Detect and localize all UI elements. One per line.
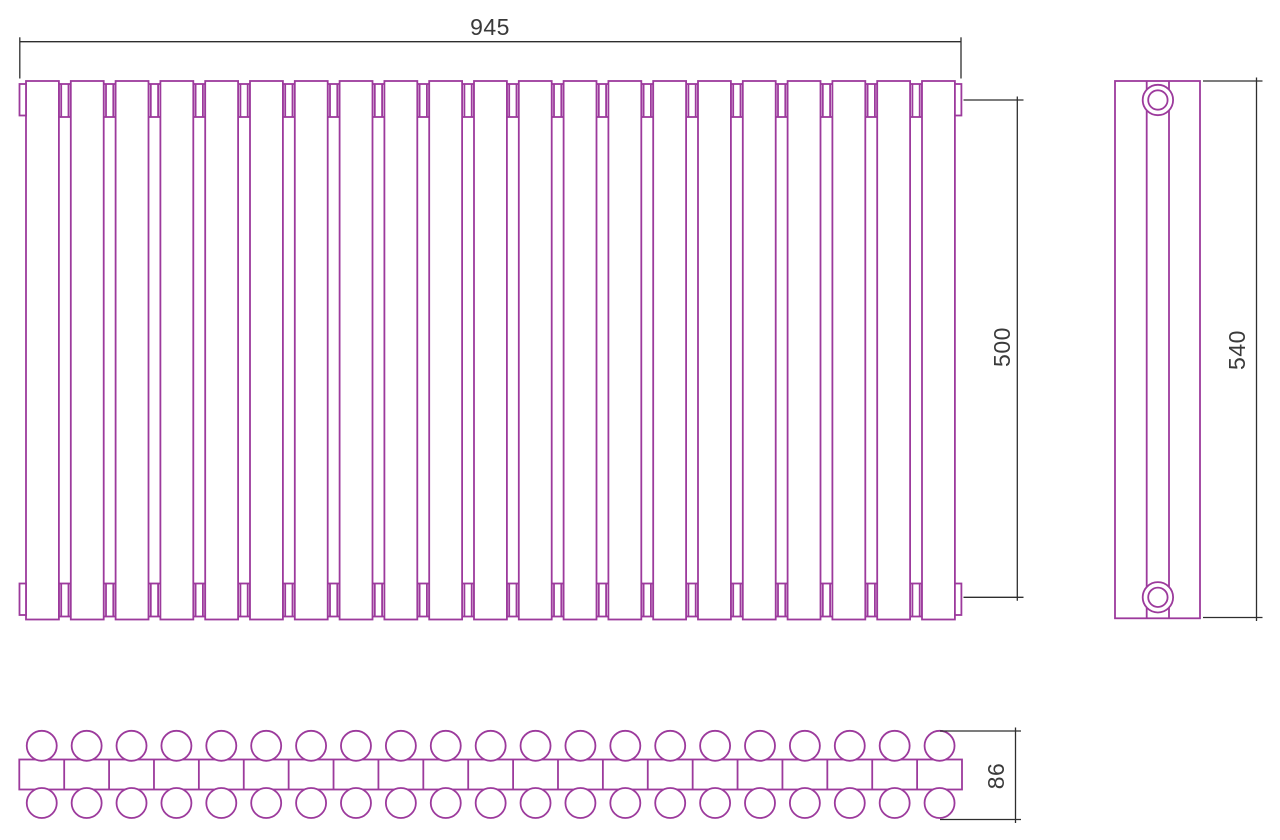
tube-section-circle [27,731,57,761]
front-view [20,81,962,620]
tube-section-circle [386,731,416,761]
tube-section-circle [296,731,326,761]
tube-section-circle [341,788,371,818]
tube-section-circle [72,788,102,818]
connection-stub [955,584,962,616]
tube-section-circle [925,731,955,761]
tube-section-circle [610,731,640,761]
tube-section-circle [206,788,236,818]
tube-section-circle [655,788,685,818]
radiator-column [608,81,641,620]
radiator-column [340,81,373,620]
tube-section-circle [655,731,685,761]
tube-section-circle [476,731,506,761]
dim-overall-width-label: 945 [470,14,510,40]
radiator-column [922,81,955,620]
bottom-view [19,731,962,818]
radiator-column [71,81,104,620]
tube-section-circle [117,788,147,818]
radiator-column [160,81,193,620]
connection-stub [20,84,27,116]
dim-depth-label: 86 [983,763,1009,790]
tube-section-circle [206,731,236,761]
connection-stub [20,584,27,616]
tube-section-circle [386,788,416,818]
tube-section-circle [521,731,551,761]
tube-section-circle [521,788,551,818]
tube-section-circle [27,788,57,818]
radiator-column [116,81,149,620]
tube-section-circle [251,731,281,761]
radiator-column [564,81,597,620]
radiator-column [205,81,238,620]
tube-section-circle [880,788,910,818]
tube-section-circle [745,788,775,818]
tube-section-circle [251,788,281,818]
tube-section-circle [341,731,371,761]
tube-section-circle [700,788,730,818]
tube-section-circle [745,731,775,761]
tube-section-circle [161,731,191,761]
drawing-canvas: 945 500 540 86 [0,0,1280,840]
radiator-column [295,81,328,620]
tube-section-circle [925,788,955,818]
tube-section-circle [835,731,865,761]
tube-section-circle [790,788,820,818]
radiator-column [743,81,776,620]
tube-section-circle [296,788,326,818]
tube-section-circle [117,731,147,761]
radiator-column [519,81,552,620]
tube-section-circle [565,788,595,818]
radiator-column [250,81,283,620]
tube-section-circle [72,731,102,761]
tube-section-circle [790,731,820,761]
tube-section-circle [161,788,191,818]
tube-section-circle [565,731,595,761]
radiator-column [384,81,417,620]
tube-section-circle [835,788,865,818]
tube-section-circle [476,788,506,818]
dim-axis-distance-label: 500 [989,327,1015,367]
radiator-column [653,81,686,620]
radiator-column [788,81,821,620]
connection-stub [955,84,962,116]
radiator-column [832,81,865,620]
radiator-column [877,81,910,620]
tube-section-circle [700,731,730,761]
dim-overall-height-label: 540 [1224,330,1250,370]
collector-band [19,760,962,790]
radiator-column [26,81,59,620]
side-view [1115,81,1200,618]
radiator-column [474,81,507,620]
tube-section-circle [880,731,910,761]
pipe-union-outer-circle [1143,85,1173,115]
tube-section-circle [610,788,640,818]
side-profile-outline [1115,81,1200,618]
radiator-column [429,81,462,620]
tube-section-circle [431,731,461,761]
radiator-technical-drawing: 945 500 540 86 [0,0,1280,840]
radiator-column [698,81,731,620]
pipe-union-outer-circle [1143,582,1173,612]
tube-section-circle [431,788,461,818]
